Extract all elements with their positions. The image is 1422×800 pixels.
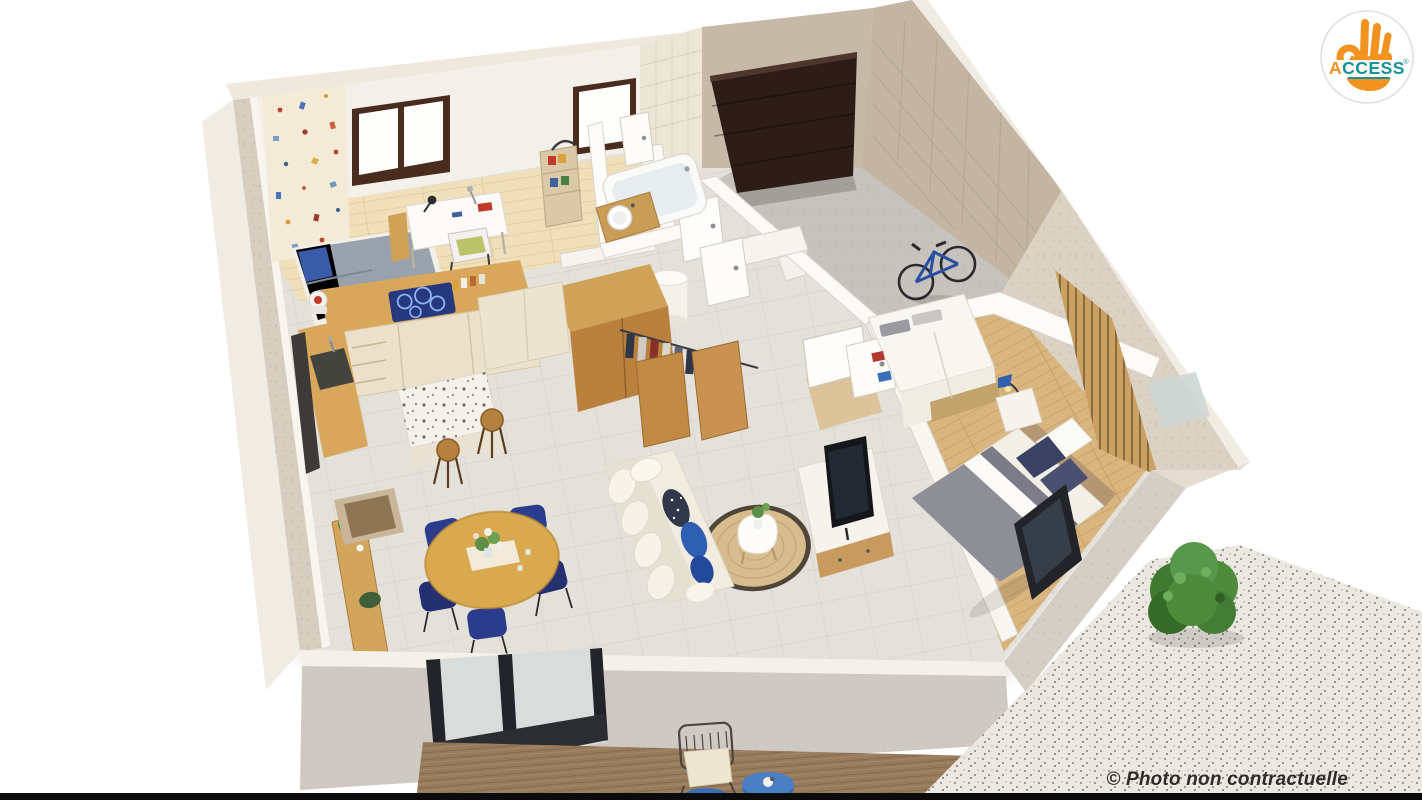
window-kidroom [352, 95, 450, 186]
photo-disclaimer-caption: © Photo non contractuelle [1106, 769, 1348, 791]
floorplan-render: ACCESS ® © Photo non contractuelle [0, 0, 1422, 800]
logo-wordmark: ACCESS [1329, 58, 1405, 78]
registered-mark: ® [1403, 58, 1409, 66]
logo-underline [1348, 77, 1390, 79]
floorplan-scene [0, 0, 1422, 800]
wallpaper-panel [262, 85, 350, 262]
food-processor [309, 291, 327, 314]
door-leaf [700, 238, 750, 306]
letterbox-bar [0, 793, 1422, 800]
ladder-shelf [540, 141, 582, 227]
access-logo: ACCESS ® [1318, 8, 1416, 106]
door-leaf [620, 112, 654, 166]
